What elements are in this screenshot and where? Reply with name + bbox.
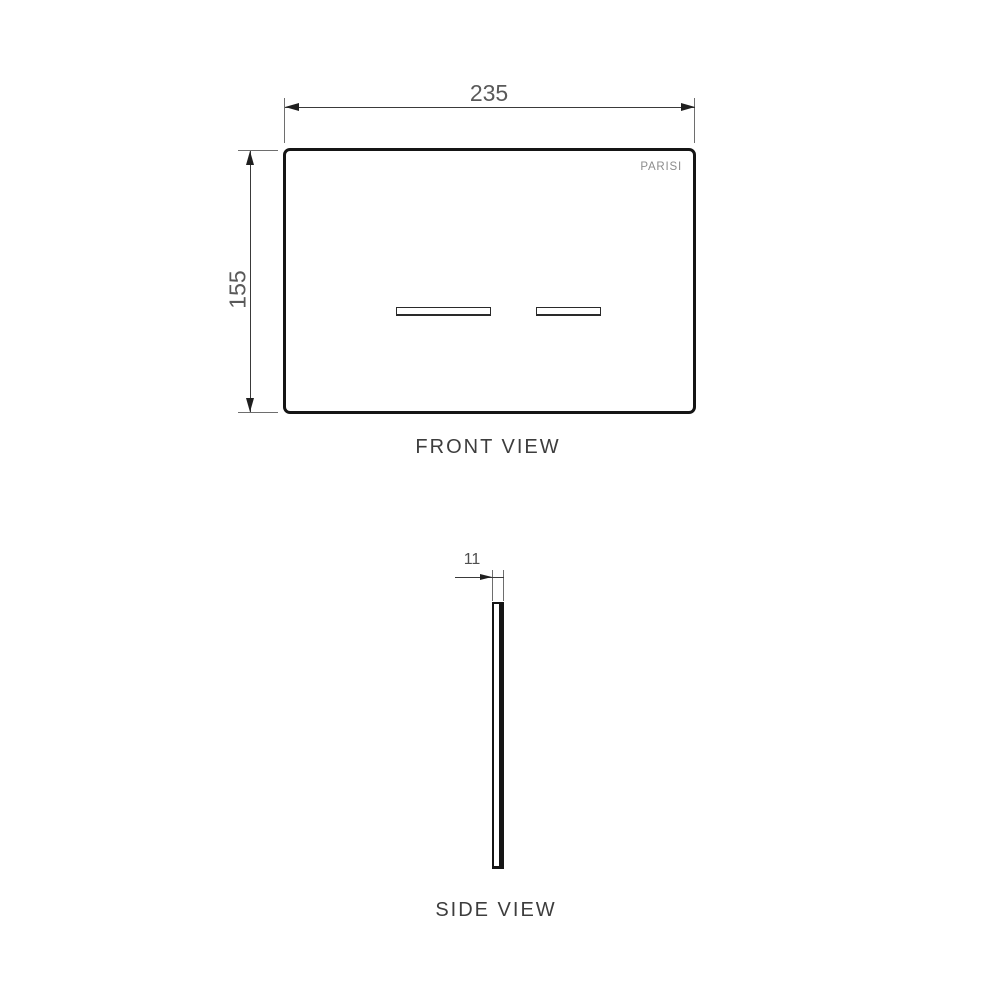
flush-plate-front-view: PARISI: [283, 148, 696, 414]
front-view-label: FRONT VIEW: [382, 436, 594, 459]
thickness-extension-line-left: [492, 570, 493, 601]
height-dimension-value: 155: [225, 260, 252, 320]
width-arrow-right-icon: [681, 103, 695, 111]
width-dimension-value: 235: [459, 80, 519, 107]
height-extension-line-bottom: [238, 412, 278, 413]
height-arrow-up-icon: [246, 151, 254, 165]
width-arrow-left-icon: [285, 103, 299, 111]
thickness-dimension-value: 11: [458, 551, 486, 569]
technical-drawing: 235 155 PARISI FRONT VIEW 11 SIDE VIEW: [0, 0, 1000, 1000]
flush-plate-side-view: [492, 602, 504, 869]
flush-button-small: [536, 307, 601, 316]
brand-logo: PARISI: [640, 161, 682, 173]
height-arrow-down-icon: [246, 398, 254, 412]
height-extension-line-top: [238, 150, 278, 151]
width-dimension-line: [285, 107, 695, 108]
thickness-arrow-icon: [480, 574, 492, 580]
thickness-extension-line-right: [503, 570, 504, 601]
side-view-label: SIDE VIEW: [396, 899, 596, 922]
flush-button-large: [396, 307, 491, 316]
